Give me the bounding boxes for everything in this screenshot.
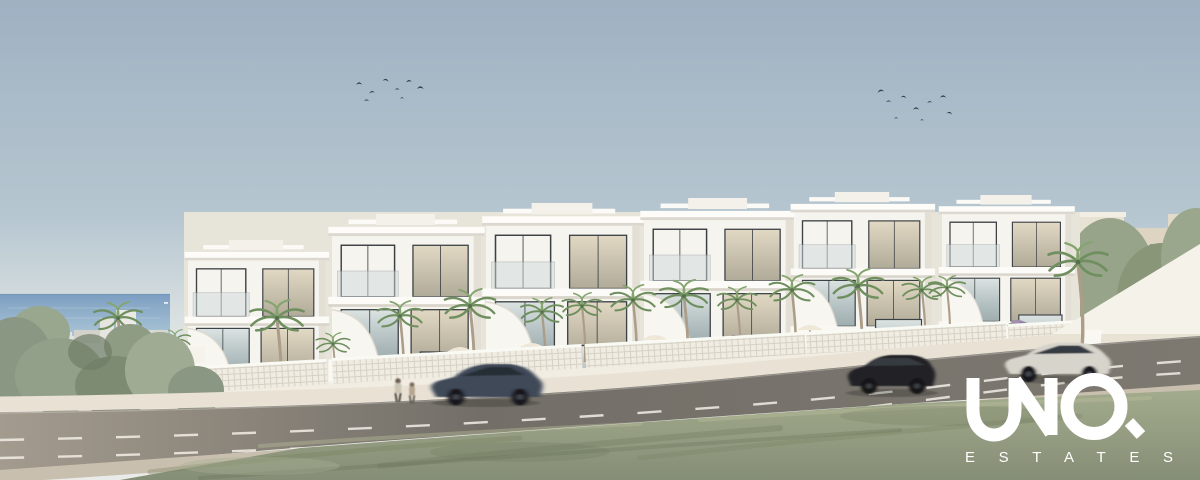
architectural-render: UNIQ ESTATES <box>0 0 1200 480</box>
boat <box>164 302 168 304</box>
